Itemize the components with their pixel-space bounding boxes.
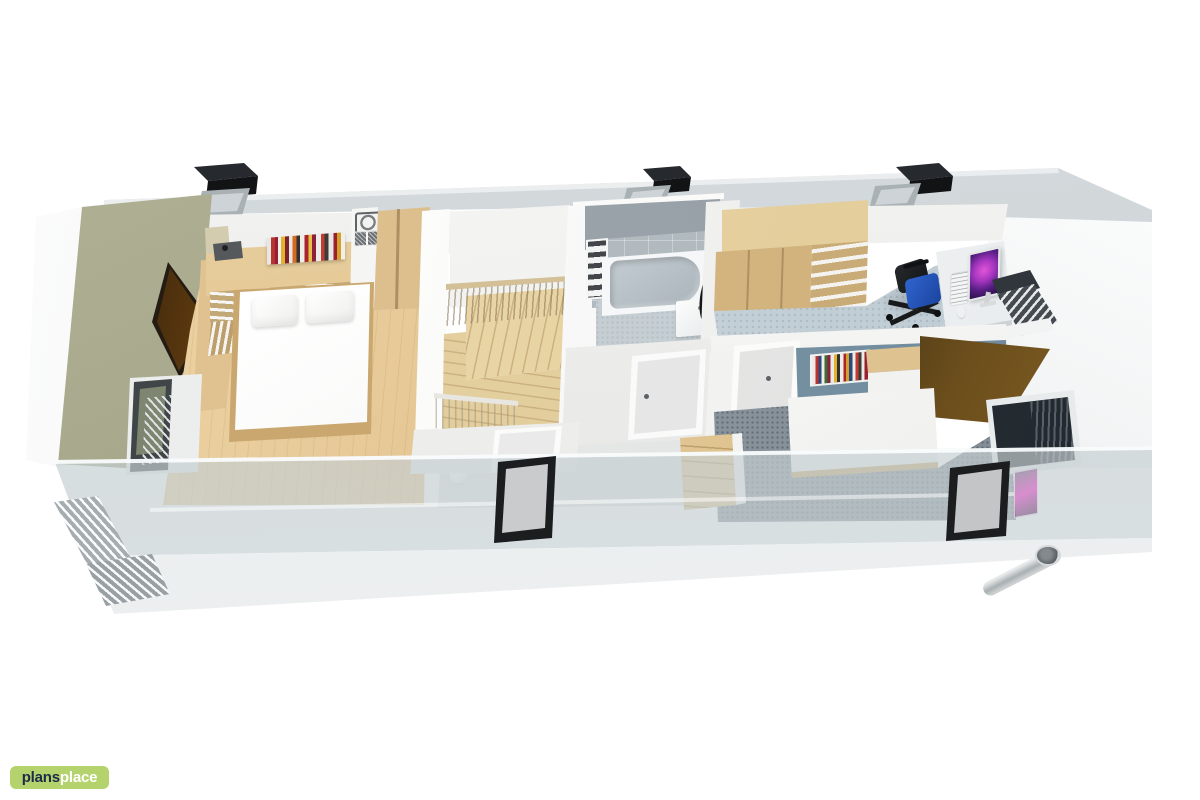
bathroom-door-handle bbox=[644, 394, 649, 399]
table-lamp bbox=[222, 245, 228, 251]
office-chair-wheel bbox=[934, 310, 941, 317]
book-row bbox=[267, 232, 345, 264]
bedroom2-book-shelf bbox=[810, 349, 870, 386]
pillow-left bbox=[252, 294, 298, 327]
glass-pane-reflection bbox=[1014, 468, 1038, 518]
plansplace-logo: plansplace bbox=[10, 766, 109, 789]
drain-pipe-outlet bbox=[1035, 545, 1061, 566]
desk-keyboard bbox=[949, 270, 969, 307]
office-chair-wheel bbox=[886, 314, 893, 321]
bedroom2-door-handle bbox=[766, 376, 771, 381]
pillow-right bbox=[306, 290, 354, 323]
logo-text-plans: plans bbox=[22, 769, 60, 786]
desk-monitor bbox=[968, 246, 1001, 302]
mini-photo-frames bbox=[354, 230, 380, 246]
logo-text-place: place bbox=[60, 769, 97, 786]
floor-plan-render: plansplace bbox=[0, 0, 1200, 800]
